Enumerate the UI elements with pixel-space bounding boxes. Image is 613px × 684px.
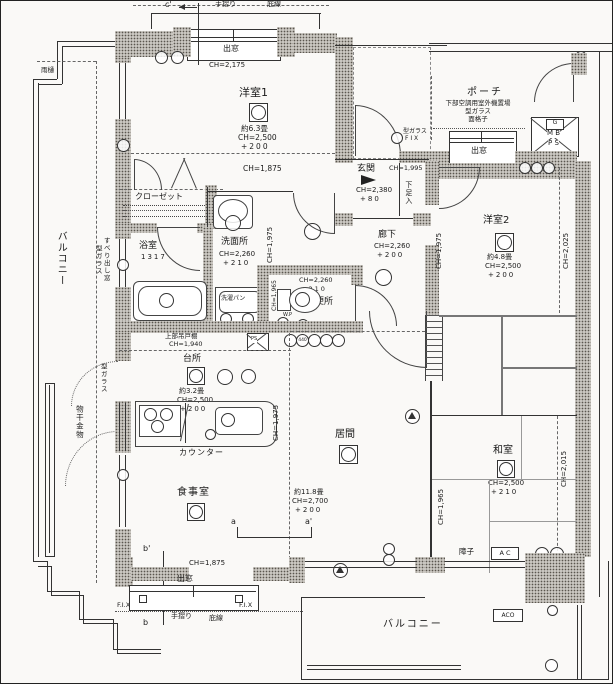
electrical-symbol <box>171 51 184 64</box>
casement-window-label: すべり出し窓 <box>102 237 109 282</box>
closet-door-arc <box>134 159 162 190</box>
sensor-symbol-triangle <box>408 412 416 419</box>
entrance-floor-level: +80 <box>360 196 381 204</box>
exterior-wall <box>115 119 131 239</box>
common-corridor-line <box>429 43 612 44</box>
shoji-window-line <box>445 567 525 568</box>
washbasin-drain <box>225 215 241 231</box>
bay-handrail-tick <box>151 13 152 29</box>
bedroom2-area: 約4.8畳 <box>487 254 512 262</box>
room-label-bedroom1: 洋室1 <box>239 87 268 99</box>
balcony-step-line <box>62 46 63 84</box>
laundry-pole-bracket-line <box>49 385 50 553</box>
bay-window-mullion <box>193 585 194 597</box>
eave-top-label: 庇線 <box>267 1 281 9</box>
stove-burner <box>160 408 173 421</box>
exterior-wall <box>115 57 131 63</box>
window-glass-line <box>125 455 126 527</box>
shoji-label: 障子 <box>459 548 474 556</box>
wall-pier <box>425 557 445 573</box>
balcony-step-line <box>51 566 52 595</box>
handrail-bottom-label: 手摺り <box>171 613 192 621</box>
vanity-line <box>207 187 208 227</box>
room-label-entrance: 玄関 <box>357 164 375 174</box>
bay-window-glass-line <box>450 138 514 139</box>
section-tick <box>311 527 312 538</box>
bedroom2-ch-left: CH=1,975 <box>436 233 444 269</box>
bay-window-label: 出窓 <box>177 575 193 584</box>
balcony-step-line <box>79 619 113 620</box>
balcony-step-line <box>57 41 58 79</box>
porch-label: ポーチ <box>467 87 503 98</box>
wall-bath-top <box>115 223 157 233</box>
ceiling-light-symbol <box>249 103 268 122</box>
kitchen-balcony-door-arc <box>71 361 118 406</box>
balcony-step-line <box>83 595 84 623</box>
shaft-hatch <box>425 315 443 381</box>
balcony-door-swing-arc <box>65 431 118 486</box>
entrance-tile-line <box>335 159 431 160</box>
ac-box: A C <box>491 547 519 560</box>
balcony-step-line <box>51 595 83 596</box>
balcony-bottom-label: バルコニー <box>383 619 443 630</box>
exterior-wall <box>115 401 131 453</box>
bay-window-post <box>139 595 147 603</box>
bath-size: 1317 <box>141 254 167 262</box>
stove-burner <box>151 420 164 433</box>
balcony-bottom-wall <box>301 679 609 680</box>
boundary-line-right <box>599 51 600 597</box>
living-ch: CH=2,700 <box>292 498 328 506</box>
entrance-ch: CH=2,380 <box>356 187 392 195</box>
drain-symbol <box>547 605 558 616</box>
bedroom2-ch: CH=2,500 <box>485 263 521 271</box>
closet-label: クローゼット <box>135 193 183 202</box>
electrical-symbol <box>217 369 233 385</box>
laundry-pole-bracket <box>45 383 55 557</box>
bedroom1-ch-low: CH=1,875 <box>243 165 282 173</box>
ceiling-light-symbol <box>187 367 205 385</box>
storage-wall-line <box>439 315 577 317</box>
bay-window-mullion <box>233 29 234 42</box>
balcony-bottom-wall <box>301 597 302 679</box>
electrical-symbol <box>117 259 129 271</box>
window-glass-line <box>125 403 126 451</box>
eave-dashed-line <box>96 61 97 583</box>
entrance-door-ch: CH=1,995 <box>389 165 422 172</box>
bay-window-label: 出窓 <box>223 45 239 54</box>
bay-handrail-tick <box>319 13 320 29</box>
room-label-corridor: 廊下 <box>378 230 396 240</box>
balcony-left-outer-wall <box>33 79 34 561</box>
bay-handrail-line <box>151 13 321 14</box>
laundry-hardware-label: 物干金物 <box>75 405 83 439</box>
balcony-left-inner-wall <box>38 83 39 557</box>
wc-ch: CH=2,260 <box>299 277 332 284</box>
bay-window-label: 出窓 <box>471 147 487 156</box>
bay-window-mullion <box>481 131 482 143</box>
porch-entry-door-arc <box>534 63 574 102</box>
folding-door-line <box>183 158 197 189</box>
patterned-glass-label: 型ガラス <box>94 245 101 275</box>
window-glass-line <box>305 561 417 562</box>
section-mark-b: b <box>143 619 148 628</box>
room-label-living: 居間 <box>335 429 355 440</box>
toilet-symbol <box>295 292 310 307</box>
balcony-left-label: バルコニー <box>55 231 66 286</box>
wall-living-washitsu <box>430 381 432 573</box>
bath-door-arc <box>157 227 200 271</box>
living-area: 約11.8畳 <box>294 489 324 497</box>
laundry-pan-label: 洗濯パン <box>221 296 245 303</box>
balcony-rail-line <box>307 669 461 670</box>
pipe-space-label: P S <box>548 140 559 148</box>
section-line-a <box>237 537 311 538</box>
wall-pier <box>289 557 305 583</box>
electrical-symbol <box>117 139 130 152</box>
washroom-side-ch: CH=1,975 <box>267 227 275 263</box>
window-grate-dotted-line <box>433 128 525 129</box>
electrical-symbol <box>155 51 168 64</box>
wall-pier <box>571 53 587 75</box>
balcony-step-line <box>38 566 51 567</box>
electrical-symbol <box>519 162 531 174</box>
window-glass-line <box>305 567 417 568</box>
room-label-washroom: 洗面所 <box>221 237 248 247</box>
ceiling-change-dashed-line <box>559 167 560 313</box>
aco-box: ACO <box>493 609 523 622</box>
section-mark-b2: b' <box>143 545 150 554</box>
balcony-divider <box>581 605 582 679</box>
balcony-bottom-wall <box>608 561 609 679</box>
wall-pier <box>335 213 353 226</box>
corridor-floor-level: +200 <box>377 252 404 260</box>
eave-dashed-line <box>37 61 96 62</box>
electrical-symbol <box>205 429 216 440</box>
balcony-step-line <box>117 623 118 653</box>
wall-bedroom1-hall <box>335 37 353 163</box>
window-glass-line <box>119 63 120 119</box>
fix-label: F.I.X <box>117 602 130 609</box>
entry-recess-line <box>335 45 447 46</box>
bedroom2-ch-right: CH=2,025 <box>563 233 571 269</box>
electrical-symbol <box>391 132 403 144</box>
balcony-step-line <box>57 41 119 42</box>
dining-ch-low: CH=1,875 <box>189 560 225 568</box>
shoe-cabinet-label: 下足入 <box>404 181 412 205</box>
storage-wall-line <box>501 367 577 369</box>
electrical-symbol <box>117 469 129 481</box>
electrical-symbol <box>375 269 392 286</box>
window-glass-line <box>125 63 126 119</box>
room-label-dining: 食事室 <box>177 487 210 498</box>
pipe-space-label: PS <box>251 337 257 343</box>
ceiling-light-symbol <box>497 460 515 478</box>
section-arrowhead <box>176 4 185 10</box>
stove-burner <box>144 408 157 421</box>
fix-glass-label: F I X <box>405 136 418 143</box>
window-glass-line <box>119 403 120 451</box>
ceiling-light-symbol <box>339 445 358 464</box>
bay-window-ch-label: CH=2,175 <box>209 62 245 70</box>
bedroom1-floor-level: +200 <box>241 143 270 151</box>
window-glass-line <box>119 455 120 527</box>
living-floor-level: +200 <box>295 507 322 515</box>
room-label-bath: 浴室 <box>139 241 157 251</box>
washroom-door-arc <box>293 193 335 234</box>
wall-pier <box>335 151 353 163</box>
section-mark-a: a <box>231 518 236 527</box>
eave-bottom-label: 庇線 <box>209 615 223 623</box>
balcony-step-line <box>113 649 161 650</box>
handrail-top-label: 手摺り <box>215 1 236 9</box>
section-mark-c: c' <box>165 1 172 10</box>
washitsu-floor-level: +210 <box>491 489 518 497</box>
cupboard-dashed-line <box>119 350 291 351</box>
tatami-line <box>432 479 576 480</box>
entrance-step-line <box>353 218 413 219</box>
balcony-rail-line <box>307 665 461 666</box>
hanging-cupboard-ch: CH=1,940 <box>169 341 202 348</box>
wall-corner-block <box>525 553 585 603</box>
fix-label: F.I.X <box>239 602 252 609</box>
folding-door-line <box>171 158 185 189</box>
room-label-washitsu: 和室 <box>493 445 513 456</box>
dining-living-dashed-line <box>289 333 290 569</box>
kitchen-side-ch: CH=1,975 <box>273 405 281 441</box>
tatami-line <box>489 521 577 522</box>
bathtub-drain <box>159 293 174 308</box>
washroom-ch: CH=2,260 <box>219 251 255 259</box>
washitsu-ch: CH=2,500 <box>488 480 524 488</box>
balcony-edge-line <box>301 597 425 598</box>
section-mark-a2: a' <box>305 518 312 527</box>
tatami-line <box>521 416 522 479</box>
section-line-c <box>198 3 199 65</box>
exterior-wall <box>293 33 337 53</box>
balcony-step-line <box>62 46 119 47</box>
shoji-window-line <box>445 561 525 562</box>
electrical-symbol <box>383 554 395 566</box>
electrical-symbol <box>543 162 555 174</box>
balcony-step-line <box>33 561 47 562</box>
electrical-symbol <box>332 334 345 347</box>
washroom-floor-level: +210 <box>223 260 250 268</box>
bay-window-glass-line <box>450 142 514 143</box>
electrical-symbol <box>531 162 543 174</box>
bedroom2-floor-level: +200 <box>488 272 515 280</box>
balcony-step-line <box>33 79 57 80</box>
electrical-symbol <box>241 369 256 384</box>
sink-faucet <box>221 413 235 427</box>
handrail-dotted-line <box>115 611 303 612</box>
wall-corridor-bedroom2 <box>425 161 439 205</box>
balcony-divider <box>577 605 578 679</box>
room-label-bedroom2: 洋室2 <box>483 215 509 226</box>
storage-wall-line <box>501 315 503 415</box>
wall-wc-right <box>351 265 363 285</box>
drain-symbol <box>545 659 558 672</box>
meter-box-label: M B <box>547 130 560 138</box>
ceiling-change-dashed-line <box>131 153 335 154</box>
exterior-wall-right <box>575 161 591 557</box>
storage-wall-line <box>431 415 577 416</box>
gutter-label: 雨樋 <box>41 67 54 74</box>
corridor-ch: CH=2,260 <box>374 243 410 251</box>
tatami-line <box>489 479 490 573</box>
balcony-step-line <box>117 653 161 654</box>
washroom-top-line <box>207 191 293 192</box>
counter-label: カウンター <box>179 449 224 458</box>
kitchen-area: 約3.2畳 <box>179 388 204 396</box>
living-door-arc <box>369 311 427 368</box>
entrance-step-mark <box>361 175 376 185</box>
wall-pier <box>413 213 431 226</box>
floor-plan: 雨樋 バルコニー 物干金物 手摺り 庇線 出窓 CH=2,175 c' <box>0 0 613 684</box>
washitsu-ch-left: CH=1,965 <box>438 489 446 525</box>
ceiling-change-dashed-line <box>557 416 558 556</box>
shoe-cabinet-line <box>399 163 400 216</box>
ceiling-light-symbol <box>495 233 514 252</box>
balcony-step-line <box>83 623 117 624</box>
room-label-kitchen: 台所 <box>183 354 201 364</box>
porch-note: 面格子 <box>431 116 525 123</box>
wall-wc-top <box>257 265 363 275</box>
balcony-step-line <box>38 84 62 85</box>
washitsu-ch-right: CH=2,015 <box>561 451 569 487</box>
bedroom2-door-arc <box>439 167 480 209</box>
ceiling-light-symbol <box>187 503 205 521</box>
